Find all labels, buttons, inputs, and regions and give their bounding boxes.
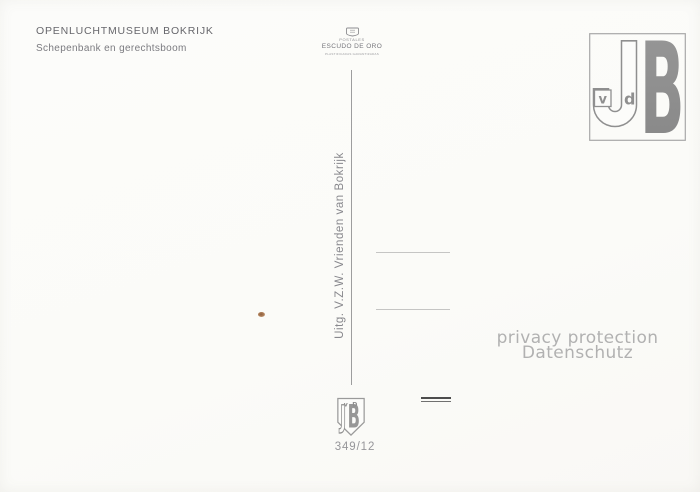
stamp-monogram-letter-v: v xyxy=(598,92,607,107)
postmark-line-top xyxy=(421,397,451,399)
publisher-vertical-text: Uitg. V.Z.W. Vrienden van Bokrijk xyxy=(334,138,349,353)
center-divider-line xyxy=(351,70,352,385)
printer-mark-fine-print: PLASTIFICADAS GARANTIZADAS xyxy=(318,53,386,56)
privacy-watermark: privacy protection Datenschutz xyxy=(460,331,695,361)
printer-mark-word: POSTALES xyxy=(318,38,386,42)
postcard-back: OPENLUCHTMUSEUM BOKRIJK Schepenbank en g… xyxy=(0,0,700,492)
address-line-1 xyxy=(376,252,450,253)
printer-mark: POSTALES ESCUDO DE ORO PLASTIFICADAS GAR… xyxy=(318,27,386,56)
paper-speck xyxy=(258,312,265,317)
series-number: 349/12 xyxy=(320,441,390,453)
shield-letter-v: v xyxy=(344,402,348,409)
stamp-box-monogram: B v d xyxy=(589,33,686,141)
stamp-monogram-letter-b: B xyxy=(640,33,685,141)
publisher-shield-logo: B J v D xyxy=(334,397,368,437)
escudo-crest-icon xyxy=(345,27,360,37)
postcard-subtitle: Schepenbank en gerechtsboom xyxy=(36,43,187,54)
stamp-monogram-letter-d: d xyxy=(624,90,635,109)
shield-letter-d: D xyxy=(352,402,357,409)
postmark-line-bottom xyxy=(421,401,451,402)
postcard-title: OPENLUCHTMUSEUM BOKRIJK xyxy=(36,25,214,37)
printer-mark-name: ESCUDO DE ORO xyxy=(318,44,386,51)
address-line-2 xyxy=(376,309,450,310)
privacy-watermark-line2: Datenschutz xyxy=(460,346,695,361)
